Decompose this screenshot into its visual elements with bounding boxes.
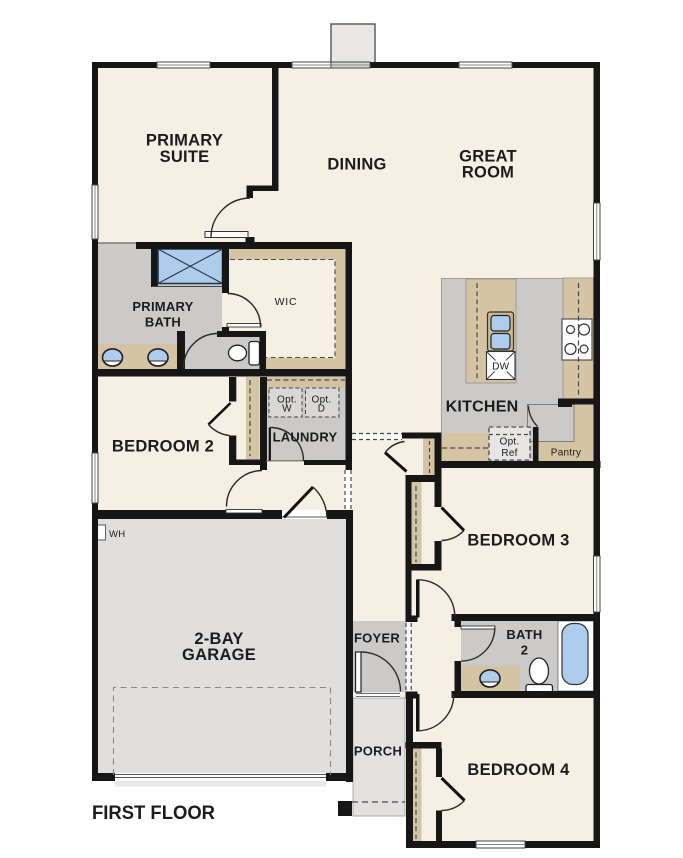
svg-text:Ref: Ref [501, 448, 517, 459]
svg-text:2: 2 [521, 643, 528, 658]
svg-text:BEDROOM 4: BEDROOM 4 [467, 761, 570, 779]
svg-text:PRIMARY: PRIMARY [146, 132, 223, 150]
svg-text:DINING: DINING [327, 156, 386, 174]
svg-text:LAUNDRY: LAUNDRY [273, 430, 338, 445]
svg-text:DW: DW [492, 362, 509, 373]
svg-text:FIRST FLOOR: FIRST FLOOR [92, 803, 215, 824]
svg-text:PRIMARY: PRIMARY [132, 299, 193, 314]
svg-text:W: W [282, 404, 292, 415]
svg-text:KITCHEN: KITCHEN [446, 399, 519, 416]
svg-text:GARAGE: GARAGE [182, 646, 256, 664]
svg-text:BATH: BATH [145, 315, 181, 330]
svg-text:BATH: BATH [506, 627, 542, 642]
svg-text:PORCH: PORCH [354, 744, 402, 759]
svg-text:Pantry: Pantry [551, 448, 581, 459]
svg-text:D: D [318, 404, 325, 415]
svg-text:WH: WH [109, 529, 125, 540]
svg-text:SUITE: SUITE [160, 148, 210, 166]
svg-text:ROOM: ROOM [462, 164, 514, 182]
svg-text:BEDROOM 3: BEDROOM 3 [467, 532, 569, 550]
svg-text:WIC: WIC [275, 296, 298, 308]
svg-text:Opt.: Opt. [500, 437, 520, 448]
svg-text:FOYER: FOYER [354, 631, 400, 646]
svg-text:BEDROOM 2: BEDROOM 2 [112, 438, 214, 456]
